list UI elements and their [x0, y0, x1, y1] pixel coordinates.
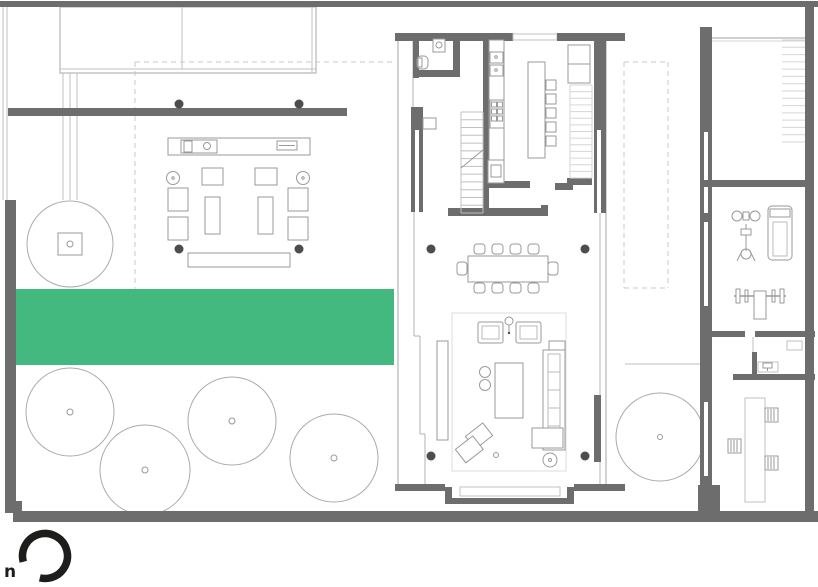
wc-wall-east: [453, 38, 460, 77]
coffee-table: [495, 363, 523, 418]
daybed-left: [205, 197, 220, 234]
gym-machine-head: [743, 212, 749, 220]
house-column-3: [427, 452, 436, 461]
lawn-strip: [16, 289, 394, 365]
gym-machine-seat: [741, 229, 751, 235]
living-console: [437, 341, 448, 440]
house-wall-south-a: [395, 484, 445, 491]
dining-chair-n1: [474, 244, 485, 254]
site-wall-right: [805, 5, 814, 522]
treadmill: [768, 206, 792, 260]
nook-wall-stub: [752, 352, 757, 374]
tree-3-canopy: [100, 425, 190, 515]
terrace-column-2: [295, 100, 304, 109]
entry-wall-bottom: [445, 498, 574, 504]
house-pier-east-2: [594, 395, 601, 462]
house-wall-north-b: [557, 33, 625, 41]
nook-window: [787, 341, 802, 350]
coffee-tray-2: [480, 380, 491, 391]
side-table-right-dot: [302, 177, 304, 179]
north-arrow-ring: [17, 528, 72, 583]
wall-corridor: [483, 38, 489, 215]
island-stool-5: [546, 136, 556, 146]
terrace-column-4: [295, 245, 304, 254]
coffee-tray-1: [480, 367, 491, 378]
lounge-armchair-r1: [288, 188, 308, 211]
kitchen-sink-cabinet: [488, 160, 504, 183]
bench-press-plate-right: [780, 289, 784, 303]
kitchen-island: [528, 62, 545, 158]
tree-4-trunk: [229, 418, 235, 424]
bench-press-plate-left: [736, 289, 740, 303]
terrace-column-1: [175, 100, 184, 109]
floor-plan-canvas: n: [0, 0, 818, 587]
floor-lamp-base: [508, 332, 510, 334]
gym-wall-south-a: [700, 331, 745, 337]
lounge-armchair-l1: [168, 188, 188, 211]
wc-sink: [433, 39, 445, 52]
wall-kitchen-d: [541, 205, 548, 216]
lounge-armchair-r2: [288, 217, 308, 240]
island-stool-1: [546, 80, 556, 90]
tree-4-canopy: [188, 377, 276, 465]
hall-bench: [423, 118, 436, 129]
island-stool-2: [546, 94, 556, 104]
tree-planter-box: [58, 233, 82, 255]
daybed-right: [258, 197, 273, 234]
nook-wall-south: [733, 374, 815, 380]
side-round-table: [543, 453, 557, 467]
tree-2-canopy: [26, 368, 114, 456]
dining-chair-s3: [510, 283, 521, 293]
ottoman-right: [255, 168, 277, 185]
house-window-north: [513, 34, 557, 40]
side-table-left: [167, 172, 180, 185]
site-wall-top: [0, 1, 818, 7]
dining-table: [468, 256, 548, 282]
gym-machine-pad-right: [750, 211, 760, 221]
floor-plan-page: n: [0, 0, 818, 587]
island-stool-4: [546, 122, 556, 132]
house-column-2: [581, 245, 590, 254]
tree-3-trunk: [142, 467, 148, 473]
office-desk: [745, 398, 765, 502]
house-wall-south-b: [574, 484, 625, 491]
house-pier-east-slit: [597, 130, 601, 213]
island-stool-3: [546, 108, 556, 118]
carport-outline: [60, 7, 316, 73]
lounge-armchair-l2: [168, 217, 188, 240]
dining-chair-n3: [510, 244, 521, 254]
dining-chair-s4: [528, 283, 539, 293]
gym-machine-pad-left: [732, 211, 742, 221]
dining-chair-n2: [492, 244, 503, 254]
reading-lamp: [494, 453, 499, 458]
tree-5-trunk: [331, 455, 337, 461]
floor-lamp: [505, 317, 513, 325]
tree-5-canopy: [290, 414, 378, 502]
wing-window-west-2: [704, 222, 708, 306]
wall-kitchen-b: [448, 208, 547, 216]
ottoman-left: [202, 168, 223, 185]
house-pier-west-slit: [415, 130, 419, 212]
wing-corner-block: [698, 485, 720, 515]
entry-steps: [460, 487, 560, 496]
tree-6-trunk: [658, 435, 663, 440]
bench-press-bench: [754, 291, 766, 319]
dining-chair-east: [548, 262, 558, 275]
pergola-beam: [8, 108, 347, 116]
outdoor-bench: [188, 253, 290, 267]
dining-chair-n4: [528, 244, 539, 254]
wc-wall-south: [413, 70, 460, 77]
tree-6-canopy: [616, 393, 704, 481]
site-wall-bottom: [13, 511, 818, 522]
wall-under-stair: [567, 178, 592, 185]
house-column-4: [581, 452, 590, 461]
sofa-foot: [532, 428, 563, 448]
dining-chair-west: [457, 262, 467, 275]
site-wall-left: [5, 200, 16, 513]
dining-chair-s1: [474, 283, 485, 293]
gym-wall-north: [700, 180, 814, 187]
side-table-right: [297, 172, 310, 185]
sofa-side-table: [549, 341, 565, 350]
north-arrow-label: n: [4, 562, 16, 582]
wing-window-west-3: [704, 402, 708, 476]
wing-window-west-1: [704, 132, 708, 213]
house-column-1: [427, 245, 436, 254]
side-table-left-dot: [172, 177, 174, 179]
dining-chair-s2: [492, 283, 503, 293]
terrace-column-3: [175, 245, 184, 254]
tree-2-trunk: [67, 409, 73, 415]
